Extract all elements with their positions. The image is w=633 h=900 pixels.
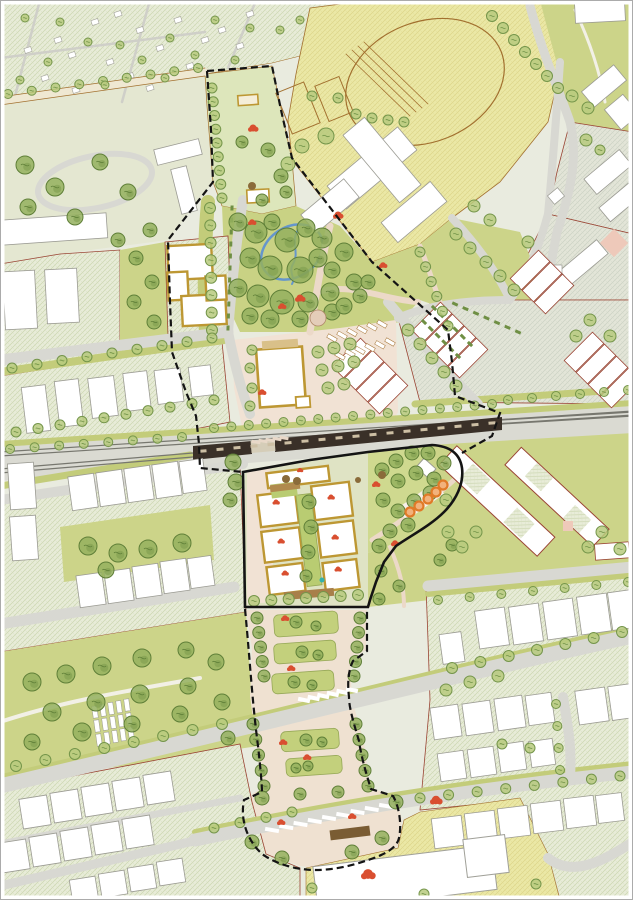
trees-west-street bbox=[206, 272, 217, 283]
park-canopy bbox=[312, 228, 332, 248]
hedge-west-street bbox=[229, 253, 232, 258]
trees-ne-road bbox=[498, 23, 509, 34]
station-west-trees bbox=[247, 345, 257, 355]
sports-trees bbox=[383, 115, 393, 125]
platform-dashes bbox=[437, 426, 444, 430]
plaza-trees bbox=[389, 795, 403, 809]
terrace-unit bbox=[430, 704, 462, 740]
trees-east-lawn-path bbox=[421, 262, 431, 272]
trees-east-lawn-path bbox=[415, 247, 425, 257]
station-bosque bbox=[328, 342, 340, 354]
station-bosque bbox=[338, 378, 350, 390]
trees-block-south bbox=[318, 592, 329, 603]
trees-main-east bbox=[532, 645, 543, 656]
garden-strip-trees bbox=[280, 186, 292, 198]
trees-park-road bbox=[132, 344, 142, 354]
trees-main-west bbox=[217, 719, 228, 730]
trees-rail-north-east bbox=[227, 422, 236, 431]
gold-building bbox=[261, 527, 302, 562]
station-bosque bbox=[316, 364, 328, 376]
courtyard-mid-trees bbox=[79, 537, 97, 555]
trees-bottom-east bbox=[558, 777, 568, 787]
promenade-bed-trees bbox=[290, 616, 302, 628]
trees-rail-far-east bbox=[552, 392, 561, 401]
trees-prom-east-1 bbox=[354, 612, 366, 624]
trees-bottom-east bbox=[444, 790, 454, 800]
ne-scatter-trees bbox=[480, 256, 492, 268]
trees-west-street bbox=[206, 307, 217, 318]
right-mid-trees bbox=[596, 526, 608, 538]
hedge-west-street bbox=[230, 205, 233, 210]
trees-rail-north-east bbox=[279, 418, 288, 427]
building-slab bbox=[45, 268, 80, 324]
promenade-bed bbox=[271, 670, 334, 694]
trees-rail-far-east bbox=[528, 394, 537, 403]
trees-bottom-east bbox=[501, 784, 511, 794]
trees-allot-road bbox=[4, 90, 13, 99]
bulge-grove bbox=[391, 504, 405, 518]
station-west-trees bbox=[245, 401, 255, 411]
trees-park-road bbox=[207, 333, 217, 343]
trees-bottom-east bbox=[472, 787, 482, 797]
courtyard-west-trees bbox=[145, 275, 159, 289]
yellow-se-trees bbox=[531, 879, 541, 889]
terrace-unit bbox=[81, 783, 113, 817]
platform-dashes bbox=[352, 434, 359, 438]
park-canopy bbox=[229, 213, 247, 231]
platform-dashes bbox=[335, 436, 342, 440]
trees-prom-east-1 bbox=[351, 641, 363, 653]
sports-trees bbox=[318, 128, 334, 144]
park-canopy bbox=[245, 221, 267, 243]
ne-lawn-trees bbox=[582, 102, 594, 114]
terrace-unit bbox=[467, 746, 497, 777]
courtyard-west-trees bbox=[129, 251, 143, 265]
platform-dashes bbox=[267, 443, 274, 447]
trees-main-west bbox=[69, 749, 80, 760]
platform-dashes bbox=[420, 428, 427, 432]
trees-main-east bbox=[447, 663, 458, 674]
above-rail-trees bbox=[438, 366, 450, 378]
building-slab bbox=[9, 515, 38, 561]
sports-trees bbox=[307, 91, 317, 101]
allotment-trees bbox=[56, 18, 64, 26]
park-canopy bbox=[275, 228, 299, 252]
trees-rail-north-east bbox=[331, 413, 340, 422]
trees-ne-road bbox=[553, 83, 564, 94]
trees-mid-band bbox=[33, 423, 43, 433]
right-mid-trees bbox=[442, 526, 454, 538]
trees-mid-band bbox=[99, 413, 109, 423]
block-court-trees bbox=[301, 545, 315, 559]
trees-allot-road bbox=[75, 80, 84, 89]
allotment-trees bbox=[246, 24, 254, 32]
trees-bottom-east bbox=[415, 793, 425, 803]
play-equipment bbox=[415, 502, 424, 511]
trees-main-east bbox=[560, 639, 571, 650]
platform-dashes bbox=[216, 448, 223, 452]
garden-strip-trees bbox=[261, 143, 275, 157]
trees-block-south bbox=[266, 595, 277, 606]
outside-block-west-trees bbox=[223, 493, 237, 507]
allotment-trees bbox=[296, 16, 304, 24]
se-lawn-trees bbox=[373, 593, 385, 605]
park-canopy bbox=[247, 285, 269, 307]
trees-rail-north-east bbox=[296, 416, 305, 425]
brown-shrub bbox=[293, 477, 301, 485]
sports-trees bbox=[351, 109, 361, 119]
trees-main-east bbox=[475, 657, 486, 668]
garden-pavilion bbox=[238, 94, 259, 105]
trees-allot-road bbox=[27, 86, 36, 95]
trees-prom-east-1 bbox=[353, 627, 365, 639]
platform-dashes bbox=[488, 421, 495, 425]
left-park-trees bbox=[172, 706, 188, 722]
terrace-unit bbox=[132, 563, 162, 598]
trees-rail-north-east bbox=[244, 421, 253, 430]
garden-strip-trees bbox=[256, 194, 268, 206]
left-park-trees bbox=[178, 642, 194, 658]
promenade-bed-trees bbox=[311, 621, 321, 631]
trees-rail-south-west bbox=[79, 439, 88, 448]
trees-rail-north-east bbox=[418, 406, 427, 415]
gold-building bbox=[322, 559, 359, 591]
play-equipment bbox=[406, 508, 415, 517]
right-mid-trees bbox=[470, 526, 482, 538]
plaza-trees bbox=[375, 831, 389, 845]
trees-main-east bbox=[617, 627, 628, 638]
trees-right-mid-road bbox=[529, 587, 538, 596]
terrace-unit bbox=[475, 607, 510, 649]
building-slab bbox=[7, 462, 36, 510]
trees-mid-band bbox=[209, 395, 219, 405]
trees-mid-band bbox=[165, 402, 175, 412]
allotment-trees bbox=[101, 81, 109, 89]
left-park-trees bbox=[124, 716, 140, 732]
trees-garden-avenue bbox=[211, 124, 221, 134]
ne-scatter-trees bbox=[595, 145, 605, 155]
platform-dashes bbox=[233, 446, 240, 450]
ne-scatter-trees bbox=[450, 228, 462, 240]
courtyard-west bbox=[120, 242, 168, 342]
trees-rail-south-west bbox=[128, 436, 137, 445]
station-bosque bbox=[344, 338, 356, 350]
brown-shrub bbox=[282, 475, 290, 483]
platform-dashes bbox=[403, 429, 410, 433]
trees-rail-north-east bbox=[262, 419, 271, 428]
open-field-trees bbox=[92, 154, 108, 170]
sports-trees bbox=[295, 139, 309, 153]
terrace-unit bbox=[577, 593, 612, 635]
park-canopy bbox=[361, 275, 375, 289]
trees-park-road bbox=[182, 337, 192, 347]
trees-rail-north-east bbox=[210, 424, 219, 433]
block-court-trees bbox=[302, 495, 316, 509]
trees-bottom-west bbox=[209, 823, 219, 833]
plaza-trees bbox=[345, 845, 359, 859]
trees-rail-south-west bbox=[6, 445, 15, 454]
block-court-trees bbox=[300, 570, 312, 582]
above-rail-trees bbox=[604, 330, 616, 342]
park-canopy bbox=[324, 262, 340, 278]
above-rail-trees bbox=[402, 324, 414, 336]
trees-right-mid-road bbox=[560, 584, 569, 593]
park-canopy bbox=[242, 308, 258, 324]
bulge-grove bbox=[372, 539, 386, 553]
trees-rail-north-east bbox=[349, 412, 358, 421]
courtyard-mid-trees bbox=[109, 544, 127, 562]
trees-right-vertical bbox=[554, 744, 563, 753]
site-plan-map bbox=[0, 0, 633, 900]
promenade-bed-trees bbox=[291, 763, 301, 773]
trees-east-lawn-path bbox=[426, 277, 436, 287]
trees-mid-band bbox=[11, 427, 21, 437]
open-field-trees bbox=[20, 199, 36, 215]
ne-scatter-trees bbox=[580, 134, 592, 146]
terrace-unit bbox=[431, 815, 464, 848]
station-west-trees bbox=[245, 363, 255, 373]
trees-ne-road bbox=[542, 71, 553, 82]
trees-garden-avenue bbox=[215, 166, 225, 176]
terrace-unit bbox=[60, 827, 92, 861]
trees-rail-north-east bbox=[435, 404, 444, 413]
allotment-trees bbox=[84, 38, 92, 46]
park-canopy bbox=[258, 256, 282, 280]
trees-right-vertical bbox=[552, 700, 561, 709]
left-park-trees bbox=[93, 657, 111, 675]
br-yard-trees bbox=[497, 739, 507, 749]
terrace-unit bbox=[91, 821, 123, 855]
trees-garden-avenue bbox=[217, 193, 227, 203]
trees-bottom-east bbox=[586, 774, 596, 784]
allotment-trees bbox=[116, 41, 124, 49]
building-slab bbox=[188, 365, 213, 397]
left-park-trees bbox=[57, 665, 75, 683]
promenade-bed-trees bbox=[300, 734, 312, 746]
bulge-grove bbox=[409, 466, 423, 480]
trees-prom-west-1 bbox=[258, 670, 270, 682]
building-slab bbox=[123, 371, 151, 412]
trees-block-south bbox=[249, 596, 260, 607]
terrace-unit bbox=[179, 458, 207, 493]
station-bosque bbox=[312, 346, 324, 358]
allotment-trees bbox=[191, 51, 199, 59]
platform-dashes bbox=[301, 439, 308, 443]
trees-block-south bbox=[353, 590, 364, 601]
gold-building bbox=[311, 482, 353, 520]
park-canopy bbox=[353, 289, 367, 303]
hedge-west-street bbox=[226, 325, 229, 330]
trees-park-road bbox=[82, 352, 92, 362]
terrace-unit bbox=[98, 870, 127, 898]
brown-shrub bbox=[248, 182, 256, 190]
trees-bottom-east bbox=[529, 780, 539, 790]
trees-prom-west-1 bbox=[251, 612, 263, 624]
outside-block-west-trees bbox=[225, 454, 241, 470]
hedge-west-street bbox=[230, 229, 233, 234]
trees-right-vertical bbox=[553, 722, 562, 731]
trees-bottom-west bbox=[287, 807, 297, 817]
plaza-trees bbox=[294, 788, 306, 800]
trees-right-mid-road bbox=[592, 581, 601, 590]
platform-dashes bbox=[369, 433, 376, 437]
bulge-grove bbox=[421, 446, 435, 460]
ne-scatter-trees bbox=[508, 284, 520, 296]
se-lawn-trees bbox=[393, 580, 405, 592]
left-park-trees bbox=[180, 678, 196, 694]
terrace-unit bbox=[525, 692, 555, 725]
terrace-unit bbox=[187, 555, 215, 588]
plaza-trees bbox=[332, 786, 344, 798]
promenade-bed-trees bbox=[303, 761, 313, 771]
trees-main-west bbox=[11, 761, 22, 772]
courtyard-west-trees bbox=[147, 315, 161, 329]
ne-scatter-trees bbox=[522, 236, 534, 248]
trees-ne-road bbox=[509, 35, 520, 46]
trees-block-south bbox=[335, 591, 346, 602]
trees-main-west bbox=[99, 743, 110, 754]
open-field-trees bbox=[16, 156, 34, 174]
park-canopy bbox=[309, 249, 327, 267]
trees-rail-south-west bbox=[178, 433, 187, 442]
play-equipment bbox=[424, 495, 433, 504]
terrace-unit bbox=[29, 833, 61, 867]
terrace-unit bbox=[497, 805, 530, 838]
platform-dashes bbox=[454, 424, 461, 428]
park-canopy bbox=[321, 283, 339, 301]
ne-scatter-trees bbox=[468, 200, 480, 212]
se-lawn-trees bbox=[434, 554, 446, 566]
trees-ne-road bbox=[531, 59, 542, 70]
hedge-west-street bbox=[227, 313, 230, 318]
sports-trees bbox=[399, 117, 409, 127]
terrace-unit bbox=[50, 789, 82, 823]
platform-dashes bbox=[284, 441, 291, 445]
trees-rail-north-east bbox=[383, 409, 392, 418]
trees-mid-band bbox=[121, 409, 131, 419]
terrace-unit bbox=[96, 469, 126, 506]
terrace-unit bbox=[595, 793, 624, 824]
allotment-trees bbox=[16, 76, 24, 84]
allotment-trees bbox=[44, 58, 52, 66]
allotment-trees bbox=[276, 26, 284, 34]
hedge-west-street bbox=[228, 277, 231, 282]
trees-allot-road bbox=[194, 64, 203, 73]
terrace-unit bbox=[122, 815, 154, 849]
terrace-unit bbox=[143, 771, 175, 805]
park-canopy bbox=[264, 214, 280, 230]
terrace-unit bbox=[76, 572, 106, 607]
trees-west-street bbox=[206, 290, 217, 301]
bulge-grove bbox=[391, 474, 405, 488]
terrace-unit bbox=[0, 839, 30, 873]
left-park-trees bbox=[131, 685, 149, 703]
trees-bottom-west bbox=[261, 812, 271, 822]
trees-main-west bbox=[158, 731, 169, 742]
park-canopy bbox=[346, 274, 362, 290]
trees-right-mid-road bbox=[434, 596, 443, 605]
park-canopy bbox=[240, 248, 260, 268]
trees-mid-band bbox=[55, 420, 65, 430]
sports-trees bbox=[367, 113, 377, 123]
terrace-unit bbox=[494, 695, 526, 731]
trees-park-road bbox=[107, 348, 117, 358]
terrace-unit bbox=[437, 750, 467, 781]
trees-rail-north-east bbox=[314, 415, 323, 424]
allotment-trees bbox=[21, 14, 29, 22]
terrace-unit bbox=[528, 738, 555, 767]
allotment-trees bbox=[166, 34, 174, 42]
bulge-grove bbox=[376, 493, 390, 507]
trees-prom-west-2 bbox=[247, 718, 259, 730]
trees-park-road bbox=[32, 359, 42, 369]
ne-scatter-trees bbox=[484, 214, 496, 226]
left-park-trees bbox=[87, 693, 105, 711]
bulge-grove bbox=[389, 454, 403, 468]
trees-allot-road bbox=[146, 70, 155, 79]
right-mid-trees bbox=[582, 541, 594, 553]
building-slab bbox=[3, 270, 38, 330]
allotment-trees bbox=[138, 56, 146, 64]
open-field-trees bbox=[143, 223, 157, 237]
hedge-west-street bbox=[229, 241, 232, 246]
terrace-unit bbox=[462, 700, 494, 736]
above-rail-trees bbox=[414, 338, 426, 350]
trees-prom-west-1 bbox=[255, 641, 267, 653]
promenade-bed bbox=[273, 611, 338, 637]
platform-dashes bbox=[471, 423, 478, 427]
trees-west-street bbox=[205, 255, 216, 266]
left-park-trees bbox=[133, 649, 151, 667]
above-rail-trees bbox=[584, 314, 596, 326]
terrace-unit bbox=[575, 687, 609, 725]
gold-building bbox=[266, 563, 305, 595]
bulge-grove bbox=[437, 456, 451, 470]
trees-east-lawn-path bbox=[432, 291, 442, 301]
trees-mid-band bbox=[143, 406, 153, 416]
right-mid-trees bbox=[614, 543, 626, 555]
brown-shrub bbox=[355, 477, 361, 483]
terrace-unit bbox=[19, 795, 51, 829]
trees-rail-north-east bbox=[488, 400, 497, 409]
large-building-se-wing bbox=[463, 835, 509, 878]
station-bosque bbox=[322, 382, 334, 394]
br-yard-trees bbox=[492, 670, 504, 682]
allotment-trees bbox=[211, 16, 219, 24]
terrace-unit bbox=[543, 598, 578, 640]
left-park-trees bbox=[23, 673, 41, 691]
trees-rail-far-east bbox=[576, 390, 585, 399]
trees-main-west bbox=[128, 737, 139, 748]
trees-prom-west-1 bbox=[256, 656, 268, 668]
promenade-bed-trees bbox=[317, 737, 327, 747]
play-equipment bbox=[439, 481, 448, 490]
trees-block-south bbox=[283, 594, 294, 605]
left-park-trees bbox=[43, 703, 61, 721]
park-canopy bbox=[292, 311, 308, 327]
above-rail-trees bbox=[570, 330, 582, 342]
promenade-bed-trees bbox=[288, 676, 300, 688]
terrace-unit bbox=[563, 795, 596, 828]
platform-dashes bbox=[386, 431, 393, 435]
outside-block-west-trees bbox=[228, 474, 244, 490]
map-canvas bbox=[0, 0, 633, 900]
trees-allot-road bbox=[170, 67, 179, 76]
courtyard-west-trees bbox=[127, 295, 141, 309]
trees-prom-west-1 bbox=[253, 627, 265, 639]
hedge-west-street bbox=[228, 265, 231, 270]
block-court-trees bbox=[304, 520, 318, 534]
